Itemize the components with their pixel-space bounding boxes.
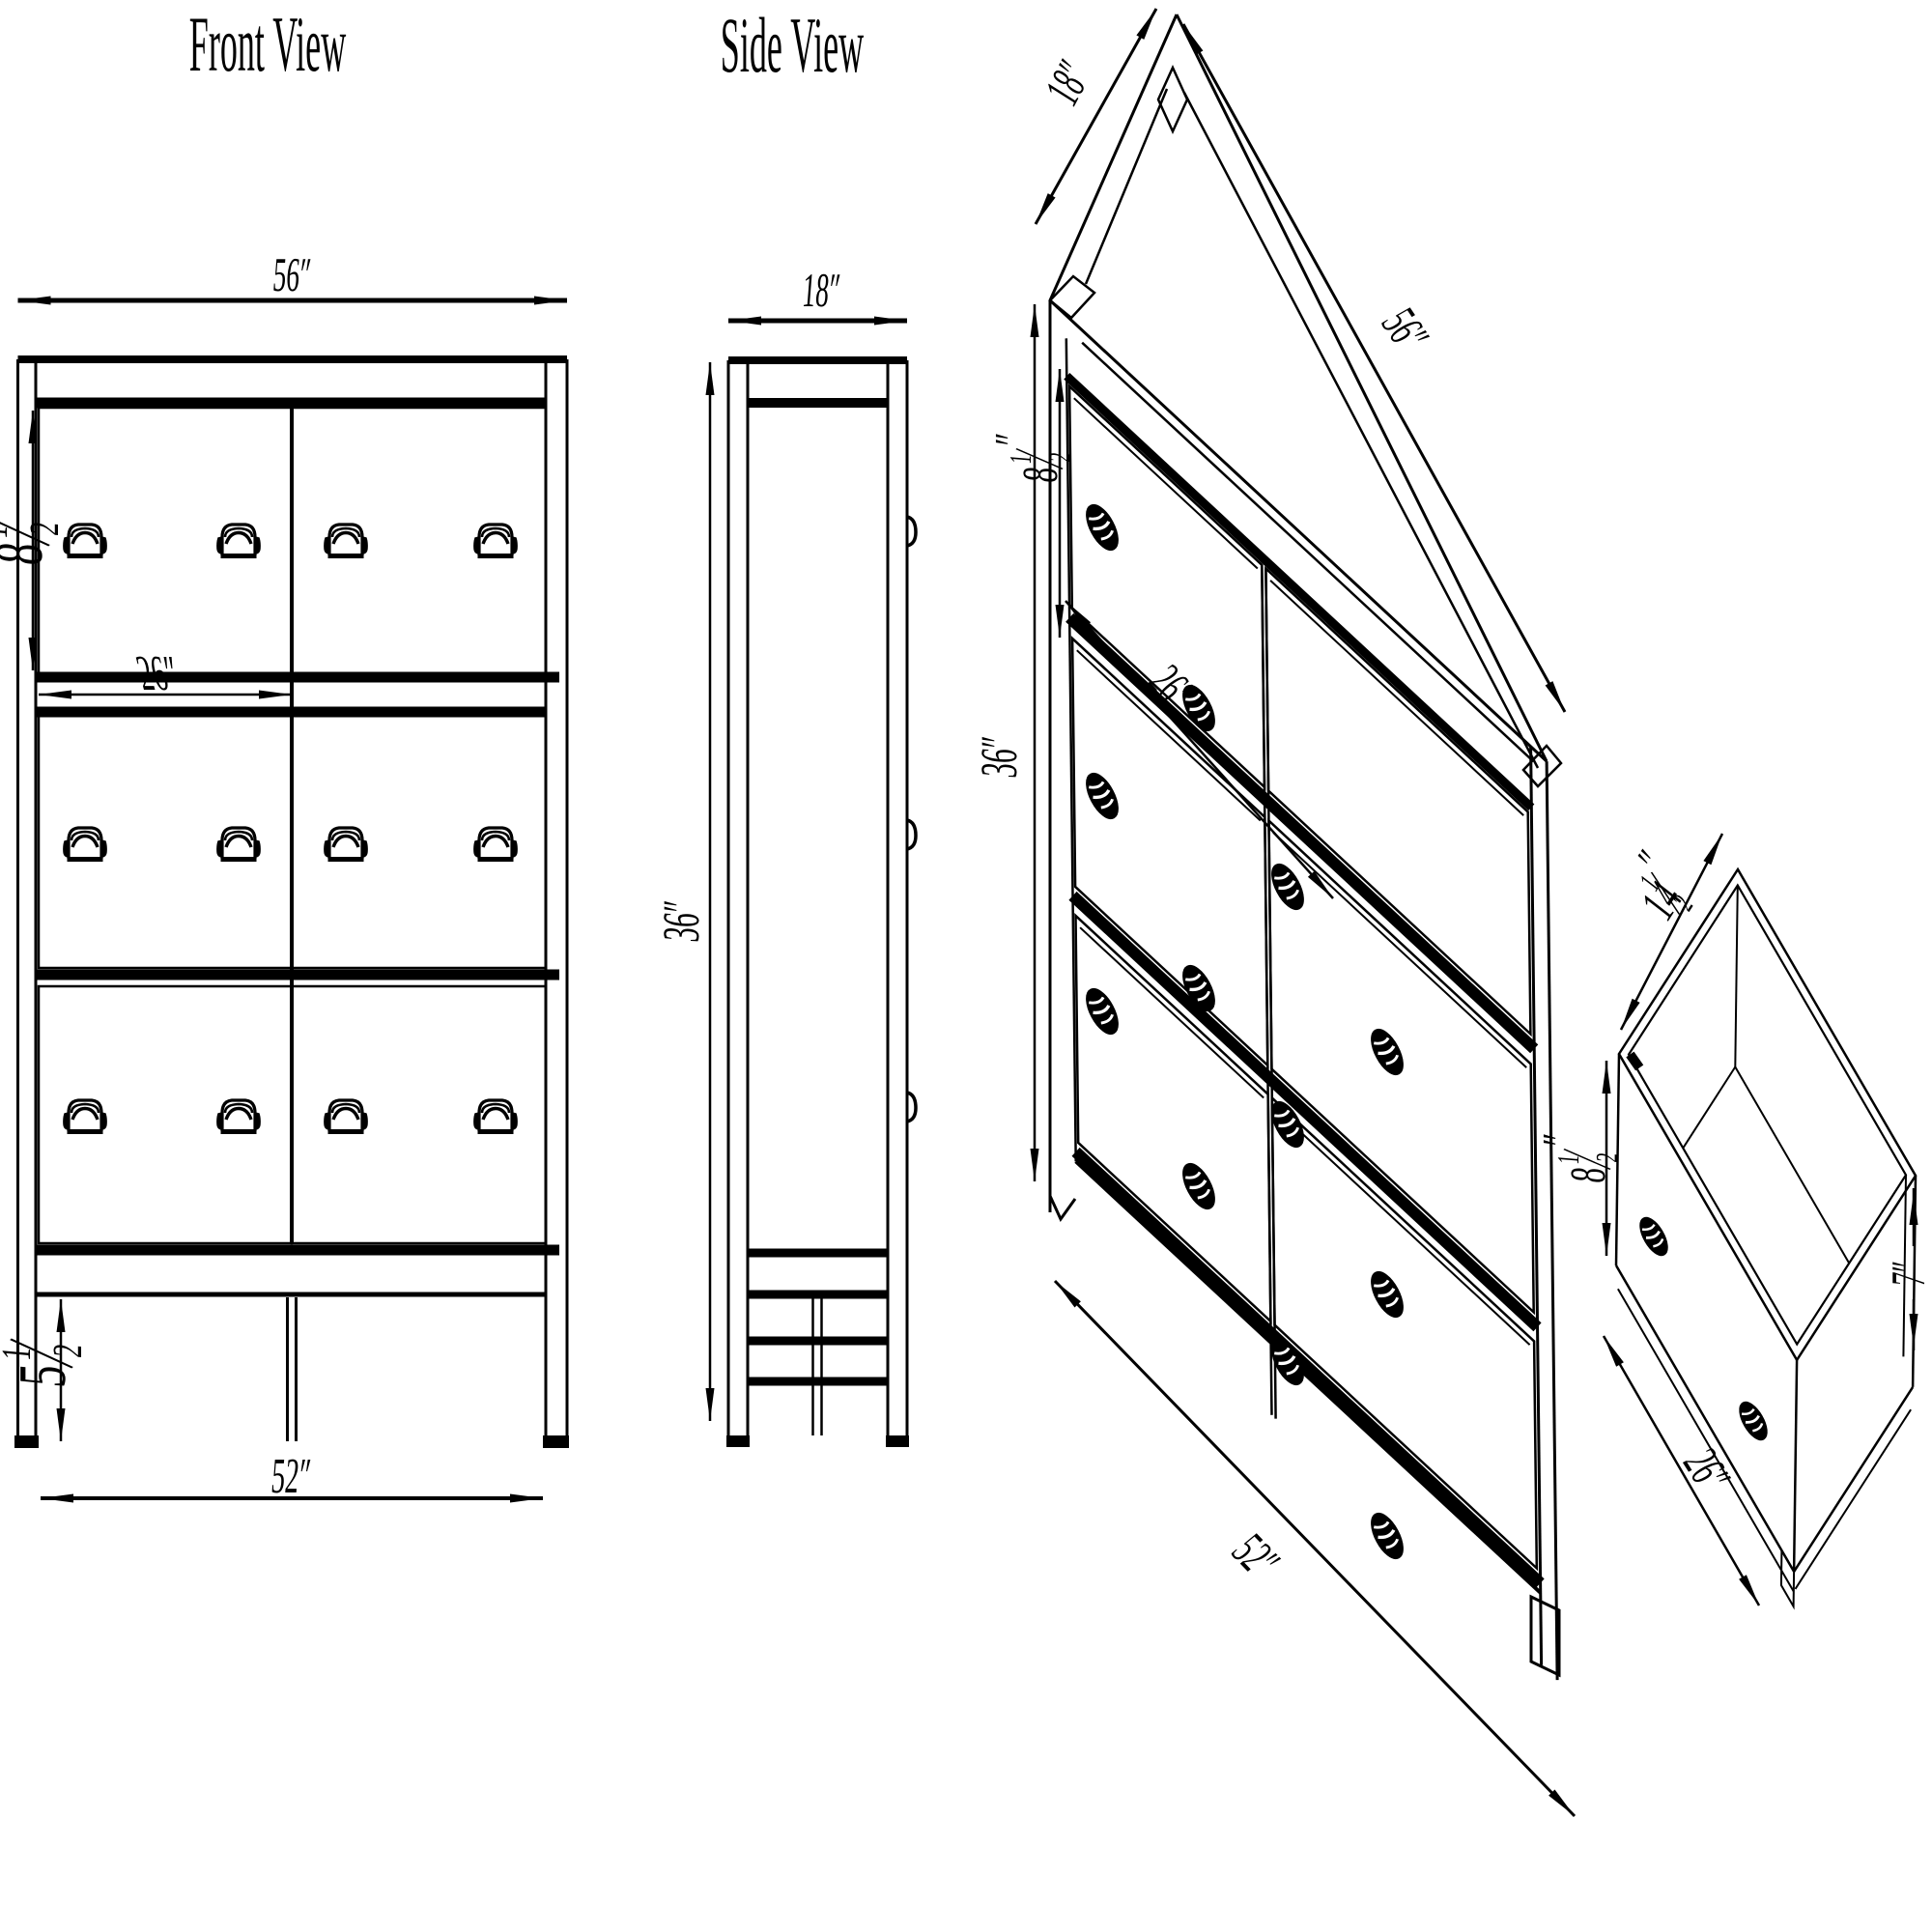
svg-text:56″: 56″ [271, 247, 313, 301]
svg-text:52″: 52″ [270, 1449, 313, 1504]
svg-text:36″: 36″ [653, 898, 710, 944]
svg-text:Front View: Front View [189, 1, 347, 89]
svg-text:18″: 18″ [801, 263, 842, 317]
svg-text:7″: 7″ [1881, 1260, 1932, 1289]
svg-text:Side View: Side View [721, 2, 865, 90]
svg-text:36″: 36″ [971, 734, 1028, 780]
